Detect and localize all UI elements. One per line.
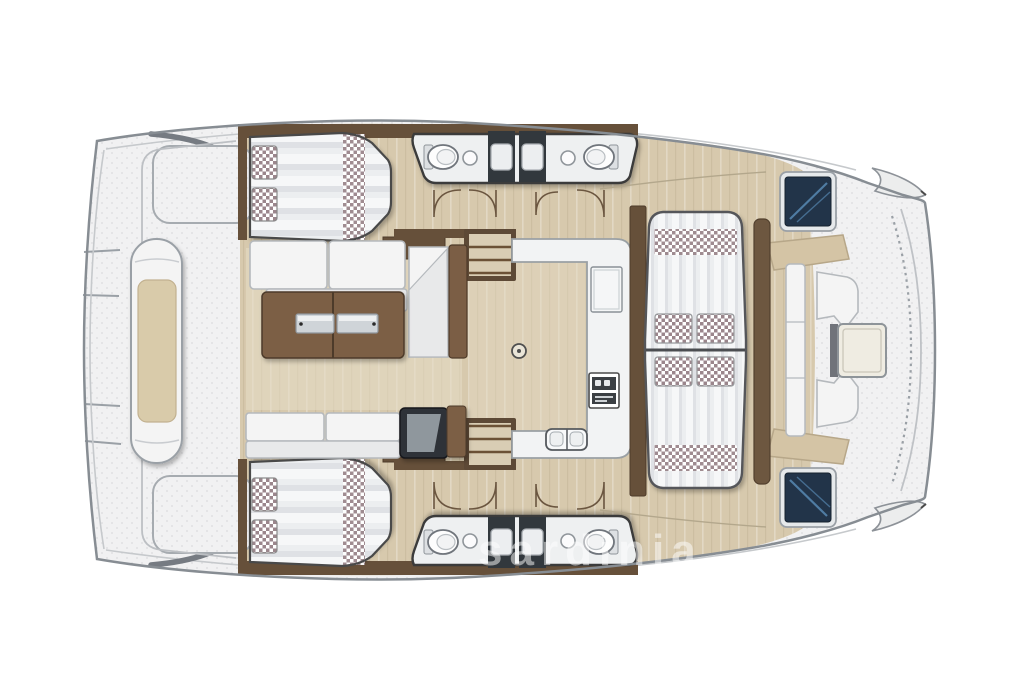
- cockpit-sofa: [786, 264, 805, 436]
- toilet: [584, 145, 618, 169]
- sofa-armrest: [449, 245, 467, 358]
- cockpit-table: [830, 324, 886, 377]
- galley-floor: [470, 262, 587, 430]
- storage-cabinet: [400, 406, 466, 458]
- table-latch: [372, 322, 376, 326]
- floor-plan-page: sardinia: [0, 0, 1024, 699]
- watermark: sardinia: [478, 526, 703, 575]
- deck-hatch: [780, 172, 836, 231]
- daybed-cushion: [697, 314, 734, 343]
- double-sink: [546, 429, 587, 450]
- shower-tray: [522, 144, 543, 170]
- daybed-cushion: [697, 357, 734, 386]
- companionway-steps: [464, 229, 516, 281]
- table-latch: [299, 322, 303, 326]
- bed-runner: [343, 134, 365, 240]
- daybed-runner: [654, 229, 737, 255]
- aft-bulkhead: [630, 206, 646, 496]
- pillow: [252, 188, 277, 221]
- sink: [561, 151, 575, 165]
- deck-lounger: [131, 239, 182, 463]
- fridge: [591, 267, 622, 312]
- daybed-cushion: [655, 314, 692, 343]
- toilet: [424, 145, 458, 169]
- cabin-bed: [250, 133, 391, 241]
- shower-tray: [491, 144, 512, 170]
- sink: [463, 151, 477, 165]
- cockpit-side-table: [754, 219, 770, 484]
- bathroom-pod: [413, 131, 638, 183]
- lounger-cushion: [138, 280, 176, 422]
- daybed-runner: [654, 445, 737, 471]
- daybed-cushion: [655, 357, 692, 386]
- saloon-bench: [246, 413, 400, 458]
- cockpit-daybed: [645, 212, 746, 488]
- cabin-wall-left: [238, 124, 247, 240]
- pillow: [252, 146, 277, 179]
- stove: [589, 373, 619, 408]
- coffee-table: [262, 292, 404, 358]
- yacht-floor-plan: sardinia: [0, 0, 1024, 699]
